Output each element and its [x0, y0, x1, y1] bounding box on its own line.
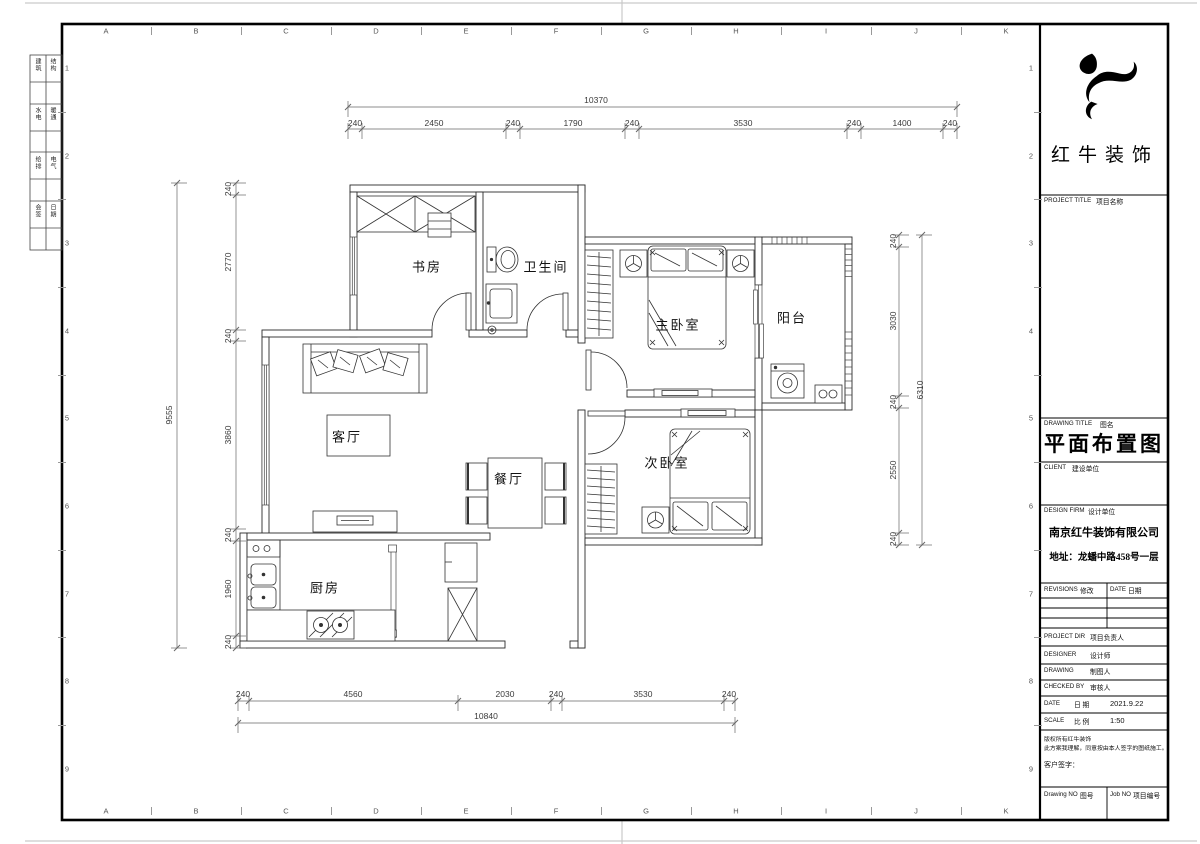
- bath-door-icon: [527, 293, 568, 330]
- sheet-frame: [62, 24, 1168, 820]
- sliding-door-icon: [754, 285, 764, 358]
- study-door-icon: [432, 293, 471, 330]
- toilet-icon: [487, 247, 518, 272]
- second-nightstand-lamp-icon: [642, 507, 669, 533]
- side-signature-table: [30, 55, 62, 250]
- master-wardrobe: [585, 250, 613, 338]
- balcony-sink-icon: [815, 385, 842, 403]
- company-logo-bull-icon: [1080, 54, 1137, 120]
- second-bed: [670, 429, 750, 534]
- tv-cabinet-second: [681, 409, 735, 417]
- coffee-table: [327, 415, 390, 456]
- stove-icon: [307, 611, 354, 639]
- sofa: [303, 344, 427, 393]
- floorplan-drawing: [0, 0, 1200, 844]
- furniture: [247, 196, 842, 641]
- second-wardrobe: [585, 464, 617, 534]
- title-block-lines: [1040, 195, 1168, 820]
- paper-edge-marks: [25, 0, 1197, 844]
- second-bedroom-door-icon: [588, 411, 625, 454]
- master-door-icon: [586, 350, 627, 390]
- study-closet: [357, 196, 475, 237]
- entry-cabinet: [445, 543, 477, 641]
- tv-cabinet-living: [313, 511, 397, 532]
- tv-cabinet-master: [654, 389, 712, 397]
- washing-machine-icon: [771, 364, 804, 398]
- wash-basin-icon: [486, 284, 517, 323]
- dining-table-set: [466, 458, 566, 528]
- master-bed: [648, 246, 726, 349]
- drawing-sheet: 书房卫生间主卧室阳台客厅餐厅次卧室厨房103702402450240179024…: [0, 0, 1200, 844]
